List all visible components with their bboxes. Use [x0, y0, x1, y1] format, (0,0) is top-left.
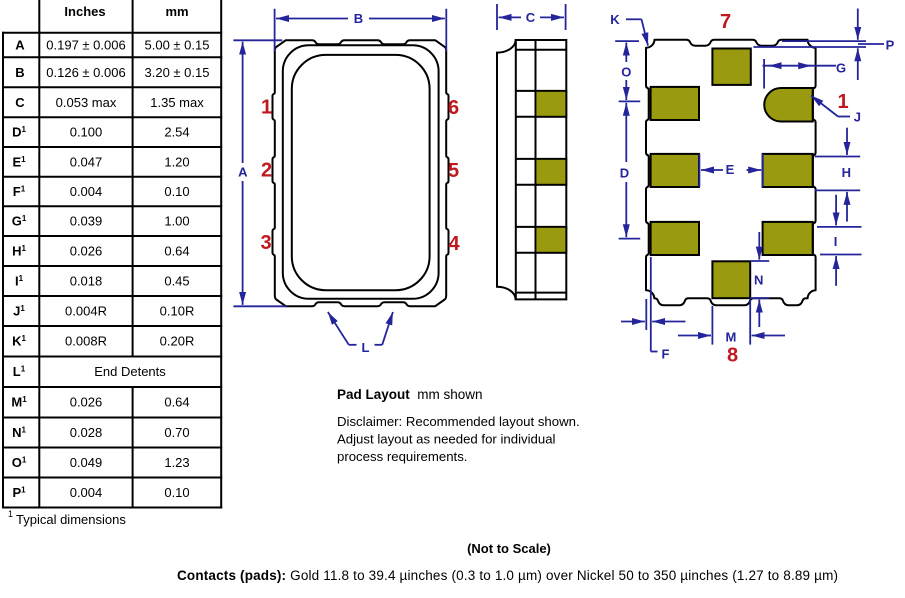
svg-text:2.54: 2.54	[164, 125, 189, 140]
svg-text:8: 8	[727, 345, 738, 367]
svg-text:L1: L1	[13, 364, 26, 379]
svg-text:A: A	[15, 38, 25, 53]
svg-text:1.20: 1.20	[164, 154, 189, 169]
svg-text:1: 1	[837, 91, 848, 113]
svg-text:B: B	[15, 65, 24, 80]
svg-text:I: I	[834, 234, 838, 249]
svg-text:0.70: 0.70	[164, 425, 189, 440]
svg-text:P: P	[886, 37, 895, 52]
svg-text:3: 3	[260, 232, 271, 254]
svg-text:H: H	[842, 165, 851, 180]
svg-text:0.20R: 0.20R	[160, 334, 195, 349]
svg-text:5.00 ± 0.15: 5.00 ± 0.15	[145, 38, 210, 53]
svg-text:F1: F1	[13, 184, 26, 199]
svg-text:M1: M1	[11, 395, 27, 410]
svg-text:Adjust layout as needed for in: Adjust layout as needed for individual	[337, 432, 556, 447]
svg-text:N: N	[754, 273, 763, 288]
svg-text:1: 1	[8, 509, 13, 519]
svg-text:0.049: 0.049	[70, 455, 103, 470]
svg-text:0.008R: 0.008R	[65, 334, 107, 349]
svg-text:Pad Layout mm shown: Pad Layout mm shown	[337, 387, 483, 402]
svg-text:0.053 max: 0.053 max	[56, 95, 117, 110]
svg-text:End Detents: End Detents	[94, 364, 166, 379]
svg-text:0.126 ± 0.006: 0.126 ± 0.006	[46, 65, 125, 80]
svg-text:Typical dimensions: Typical dimensions	[16, 512, 126, 527]
svg-text:B: B	[354, 11, 363, 26]
svg-text:H1: H1	[12, 244, 26, 259]
svg-text:1.35 max: 1.35 max	[150, 95, 204, 110]
svg-text:0.100: 0.100	[70, 125, 103, 140]
svg-text:1: 1	[261, 96, 272, 118]
svg-text:C: C	[15, 95, 25, 110]
svg-text:0.047: 0.047	[70, 154, 103, 169]
svg-text:P1: P1	[12, 485, 26, 500]
svg-text:F: F	[662, 347, 670, 362]
svg-text:L: L	[362, 340, 370, 355]
svg-text:2: 2	[261, 160, 272, 182]
svg-text:O: O	[621, 65, 631, 80]
svg-text:4: 4	[448, 233, 460, 255]
svg-text:(Not to Scale): (Not to Scale)	[467, 541, 551, 556]
svg-text:0.026: 0.026	[70, 244, 103, 259]
svg-text:J1: J1	[13, 304, 25, 319]
svg-text:D1: D1	[12, 125, 26, 140]
svg-text:E: E	[726, 162, 735, 177]
svg-text:Disclaimer: Recommended layout: Disclaimer: Recommended layout shown.	[337, 414, 580, 429]
svg-text:0.10: 0.10	[164, 485, 189, 500]
svg-text:0.018: 0.018	[70, 274, 103, 289]
svg-text:J: J	[854, 110, 861, 125]
svg-text:process requirements.: process requirements.	[337, 449, 467, 464]
svg-text:0.004: 0.004	[70, 485, 103, 500]
svg-text:0.004: 0.004	[70, 184, 103, 199]
svg-text:Inches: Inches	[64, 4, 105, 19]
svg-text:0.028: 0.028	[70, 425, 103, 440]
svg-text:1.00: 1.00	[164, 214, 189, 229]
svg-text:0.004R: 0.004R	[65, 304, 107, 319]
svg-text:I1: I1	[15, 274, 24, 289]
svg-text:O1: O1	[12, 455, 27, 470]
svg-text:K1: K1	[12, 334, 26, 349]
svg-text:E1: E1	[12, 154, 26, 169]
svg-text:5: 5	[448, 160, 459, 182]
svg-text:M: M	[725, 330, 736, 345]
svg-text:A: A	[238, 165, 248, 180]
svg-text:0.10: 0.10	[164, 184, 189, 199]
svg-text:0.10R: 0.10R	[160, 304, 195, 319]
svg-text:0.45: 0.45	[164, 274, 189, 289]
svg-text:D: D	[620, 166, 629, 181]
svg-text:0.64: 0.64	[164, 395, 189, 410]
svg-text:G: G	[836, 60, 846, 75]
svg-text:K: K	[610, 12, 620, 27]
svg-text:C: C	[526, 10, 536, 25]
svg-text:7: 7	[720, 11, 731, 33]
svg-text:0.026: 0.026	[70, 395, 103, 410]
svg-text:1.23: 1.23	[164, 455, 189, 470]
svg-text:6: 6	[448, 97, 459, 119]
svg-text:0.197 ± 0.006: 0.197 ± 0.006	[46, 38, 125, 53]
svg-text:Contacts (pads): Gold 11.8 to: Contacts (pads): Gold 11.8 to 39.4 µinch…	[177, 568, 838, 583]
svg-text:N1: N1	[12, 425, 26, 440]
svg-text:G1: G1	[12, 214, 27, 229]
svg-text:0.64: 0.64	[164, 244, 189, 259]
svg-text:mm: mm	[165, 4, 188, 19]
svg-text:3.20 ± 0.15: 3.20 ± 0.15	[145, 65, 210, 80]
svg-text:0.039: 0.039	[70, 214, 103, 229]
